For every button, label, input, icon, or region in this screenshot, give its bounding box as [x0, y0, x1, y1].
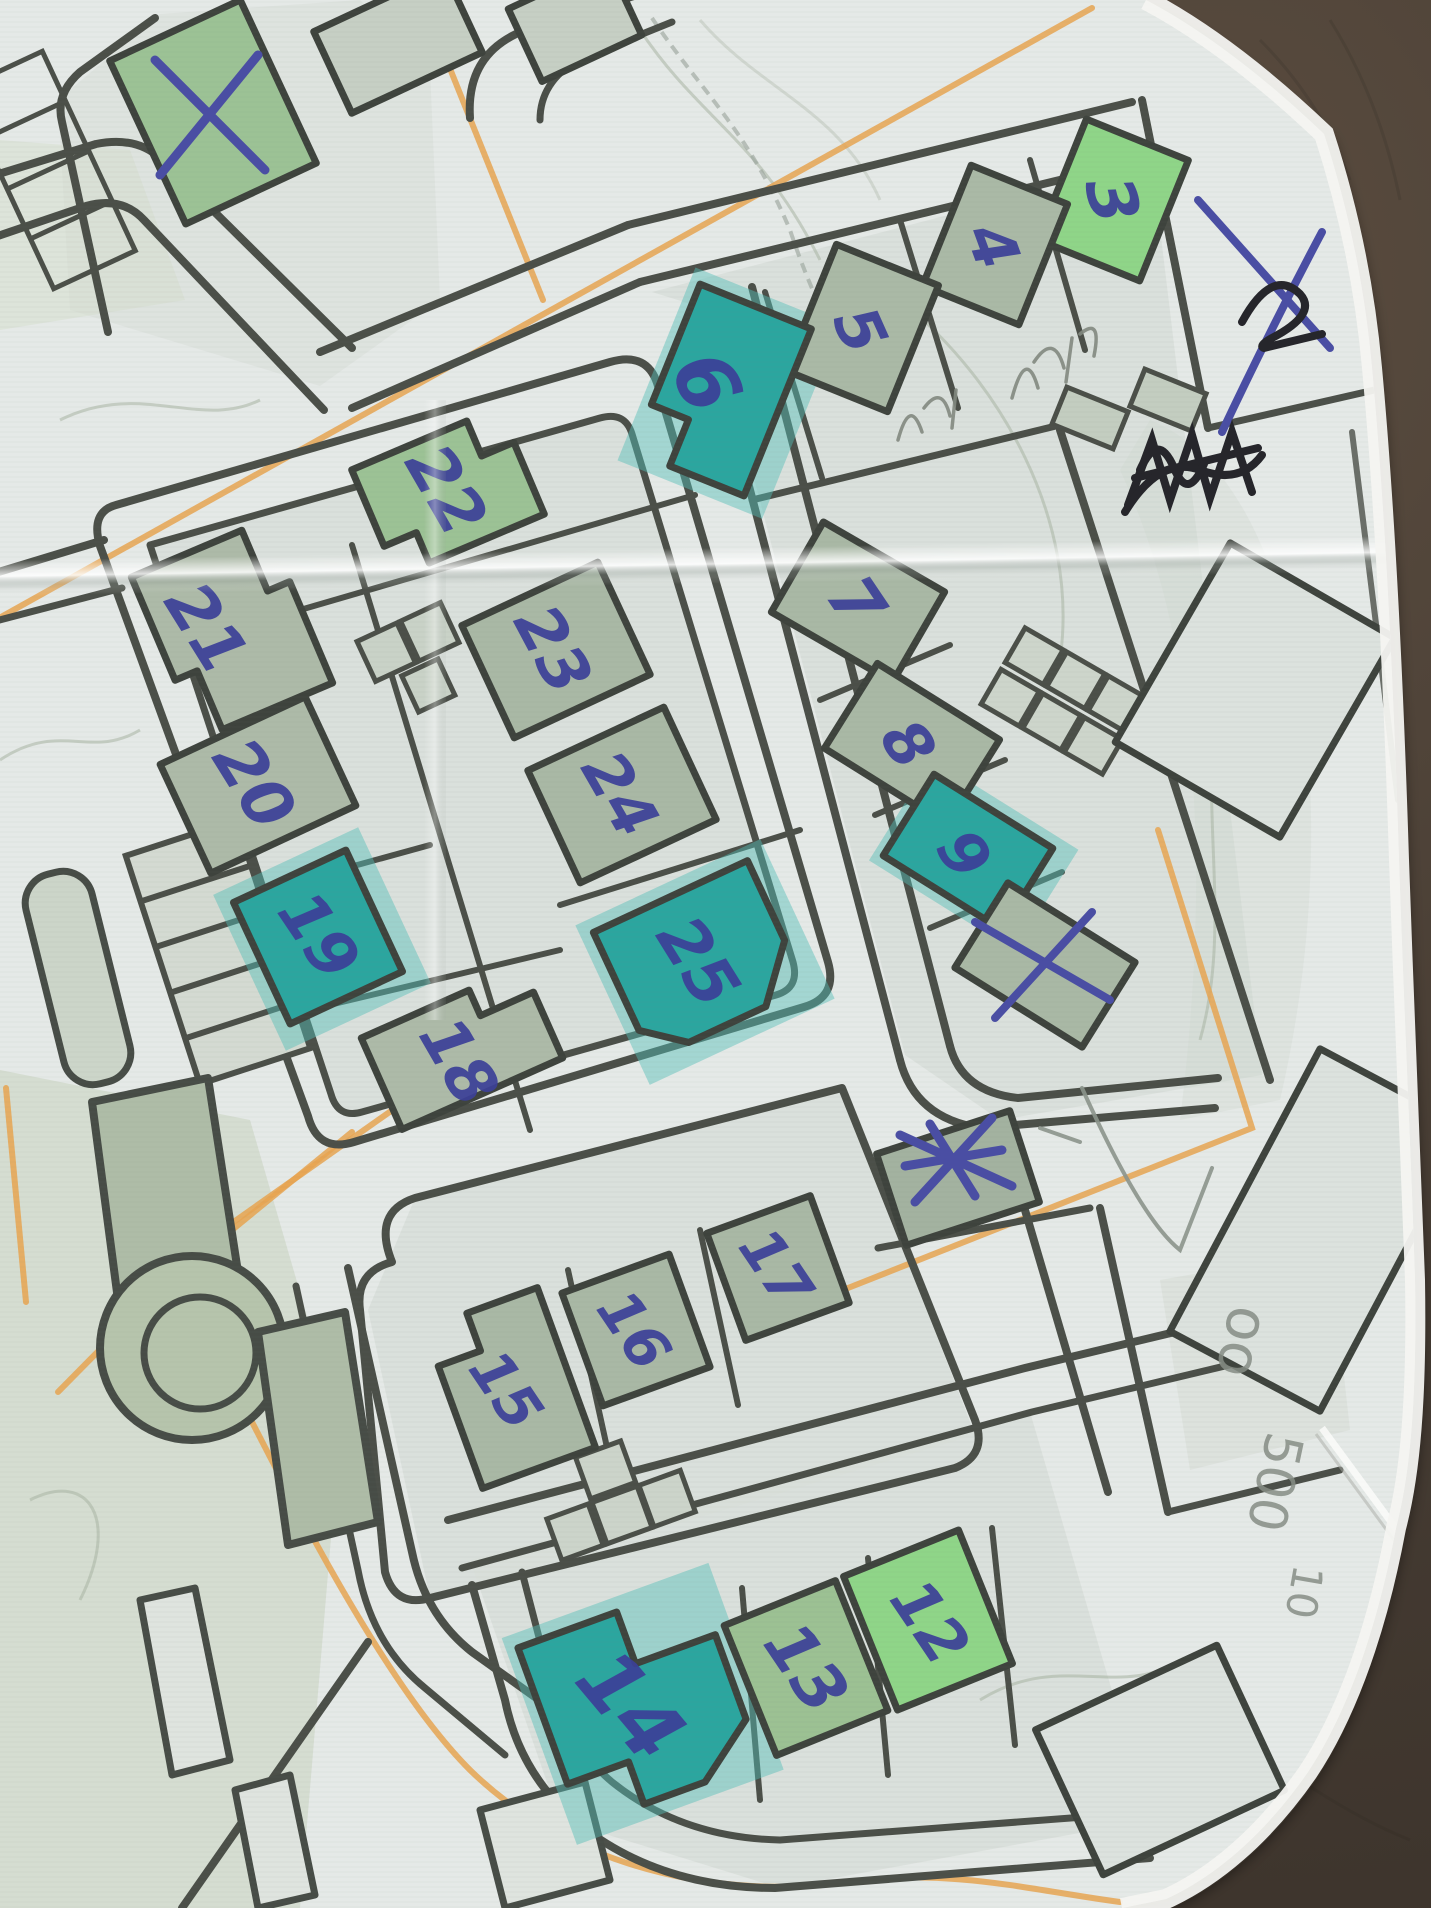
- annotated-paper-map-photo: 34567891213141516171819202122232425 oo50…: [0, 0, 1431, 1908]
- pencil-note: 10: [1275, 1561, 1333, 1622]
- pencil-note: oo: [1202, 1300, 1283, 1384]
